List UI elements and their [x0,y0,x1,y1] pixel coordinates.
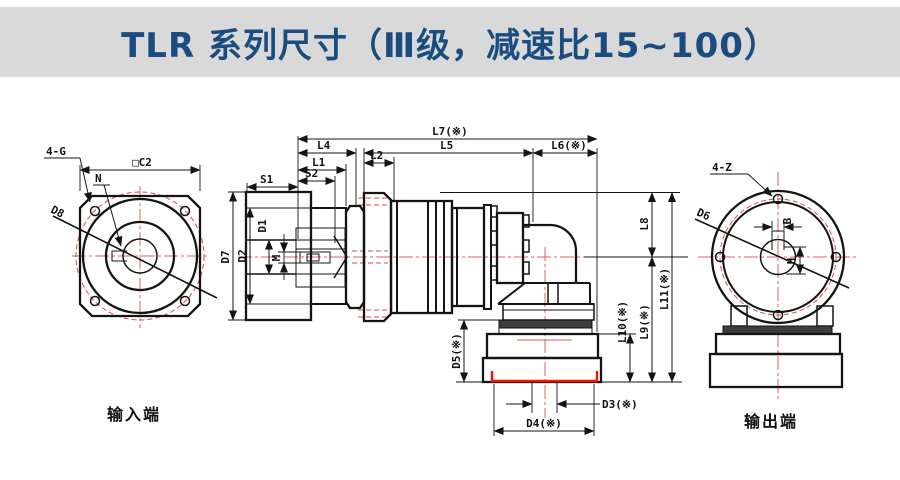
label-l7: L7(※) [432,125,468,138]
output-pedestal [710,306,842,387]
label-l9: L9(※) [638,304,651,340]
label-bolt-holes-input: 4-G [46,145,66,158]
callout-4z: 4-Z [710,161,772,196]
page: TLR 系列尺寸（Ⅲ级，减速比15~100） [0,0,900,480]
label-d3: D3(※) [602,398,638,411]
label-l5: L5 [440,139,453,152]
label-d8: D8 [49,203,67,221]
label-bolt-holes-output: 4-Z [712,161,732,174]
right-dimensions: L8 L9(※) L10(※) L11(※) [440,193,682,383]
label-l10: L10(※) [616,301,629,343]
label-d7: D7 [219,250,232,263]
output-flange-stack [483,304,601,382]
label-d5: D5(※) [450,333,463,369]
elbow-block [497,213,523,283]
label-l8: L8 [638,217,651,230]
caption-output-end: 输出端 [744,412,798,431]
label-l1: L1 [312,156,326,169]
label-l11: L11(※) [658,268,671,310]
label-s1: S1 [260,173,274,186]
label-keyway-n: N [95,172,102,185]
hub-hatch-upper [296,228,345,240]
left-dimensions: D7 D2 D1 M [219,192,313,320]
hub-hatch-lower [296,274,345,287]
seal-band [723,326,832,334]
label-d1: D1 [256,219,269,233]
bottom-dimensions: D5(※) D3(※) D4(※) [450,320,638,436]
label-b: B [781,217,794,224]
drawing-canvas: □C2 4-G N D8 输入端 [0,0,900,480]
seal-band [499,320,592,328]
label-m: M [270,254,283,261]
bolt-hole [181,207,190,216]
caption-input-end: 输入端 [107,405,161,424]
side-section-view: S1 S2 L1 L2 L4 L5 L6(※) L7(※) [219,125,688,436]
output-flange-lower [483,358,601,382]
callout-4g: 4-G [44,145,90,202]
label-d2: D2 [236,249,249,262]
label-l4: L4 [317,139,331,152]
label-square-size: □C2 [132,156,152,169]
top-dimensions: S1 S2 L1 L2 L4 L5 L6(※) L7(※) [247,125,597,187]
elbow-pipe [498,225,594,304]
bolt-hole [91,297,100,306]
input-boss-outline [311,208,346,304]
label-l2: L2 [370,149,383,162]
input-end-view: □C2 4-G N D8 输入端 [44,145,217,424]
label-d4: D4(※) [526,417,562,430]
output-flange-upper [487,334,598,358]
label-l6: L6(※) [551,139,587,152]
dim-d8: D8 [49,203,217,298]
output-end-view: B H D6 4-Z [695,161,858,431]
